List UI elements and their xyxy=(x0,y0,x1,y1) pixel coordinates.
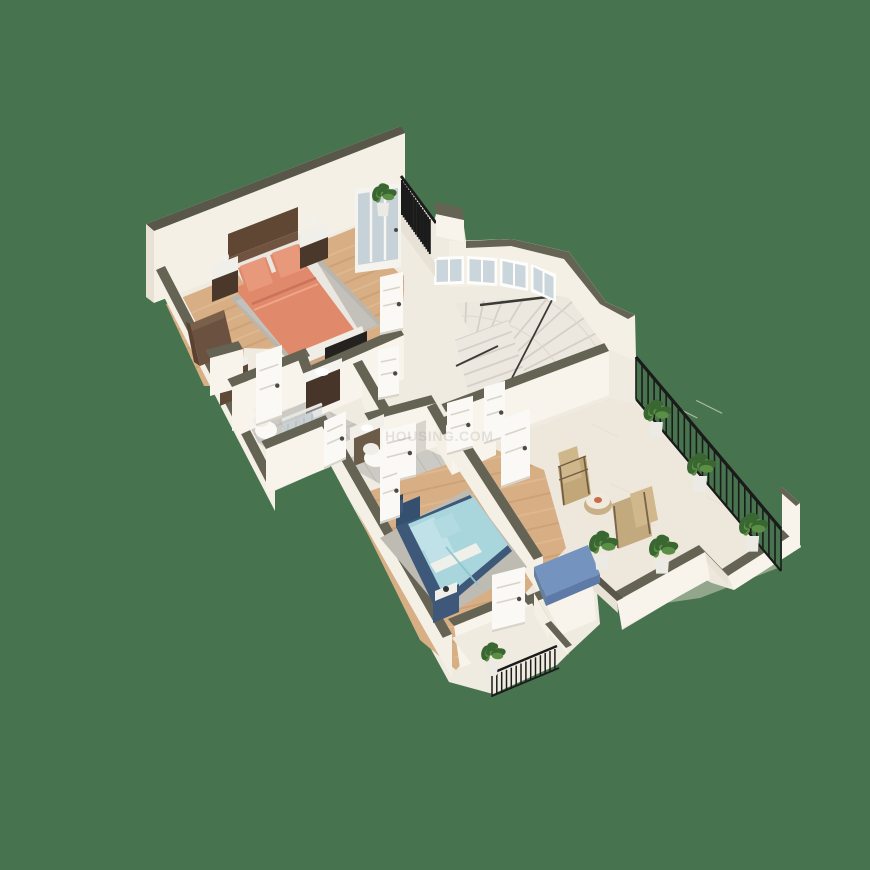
svg-text:HOUSING.COM: HOUSING.COM xyxy=(385,428,494,444)
